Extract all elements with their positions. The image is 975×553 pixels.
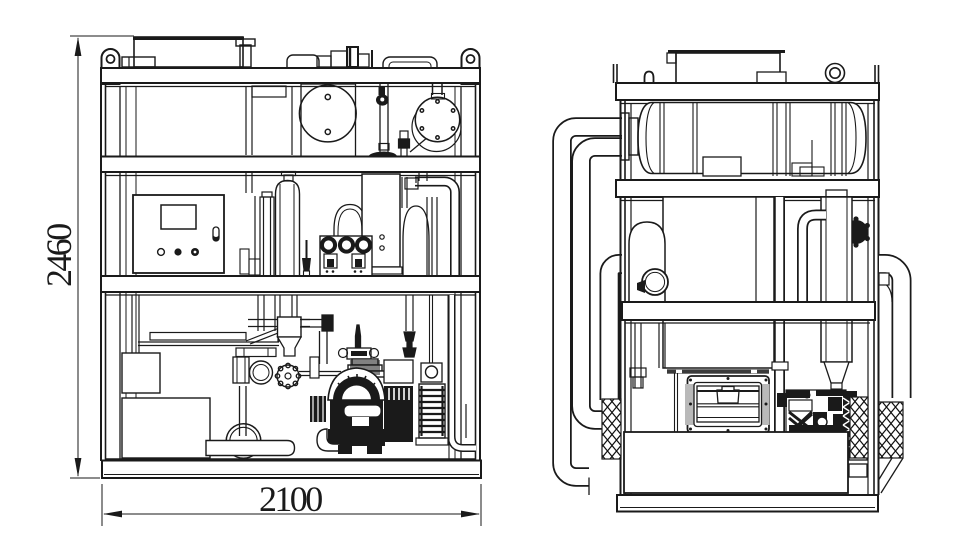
svg-text:2100: 2100	[259, 479, 322, 519]
svg-text:2460: 2460	[39, 224, 79, 287]
